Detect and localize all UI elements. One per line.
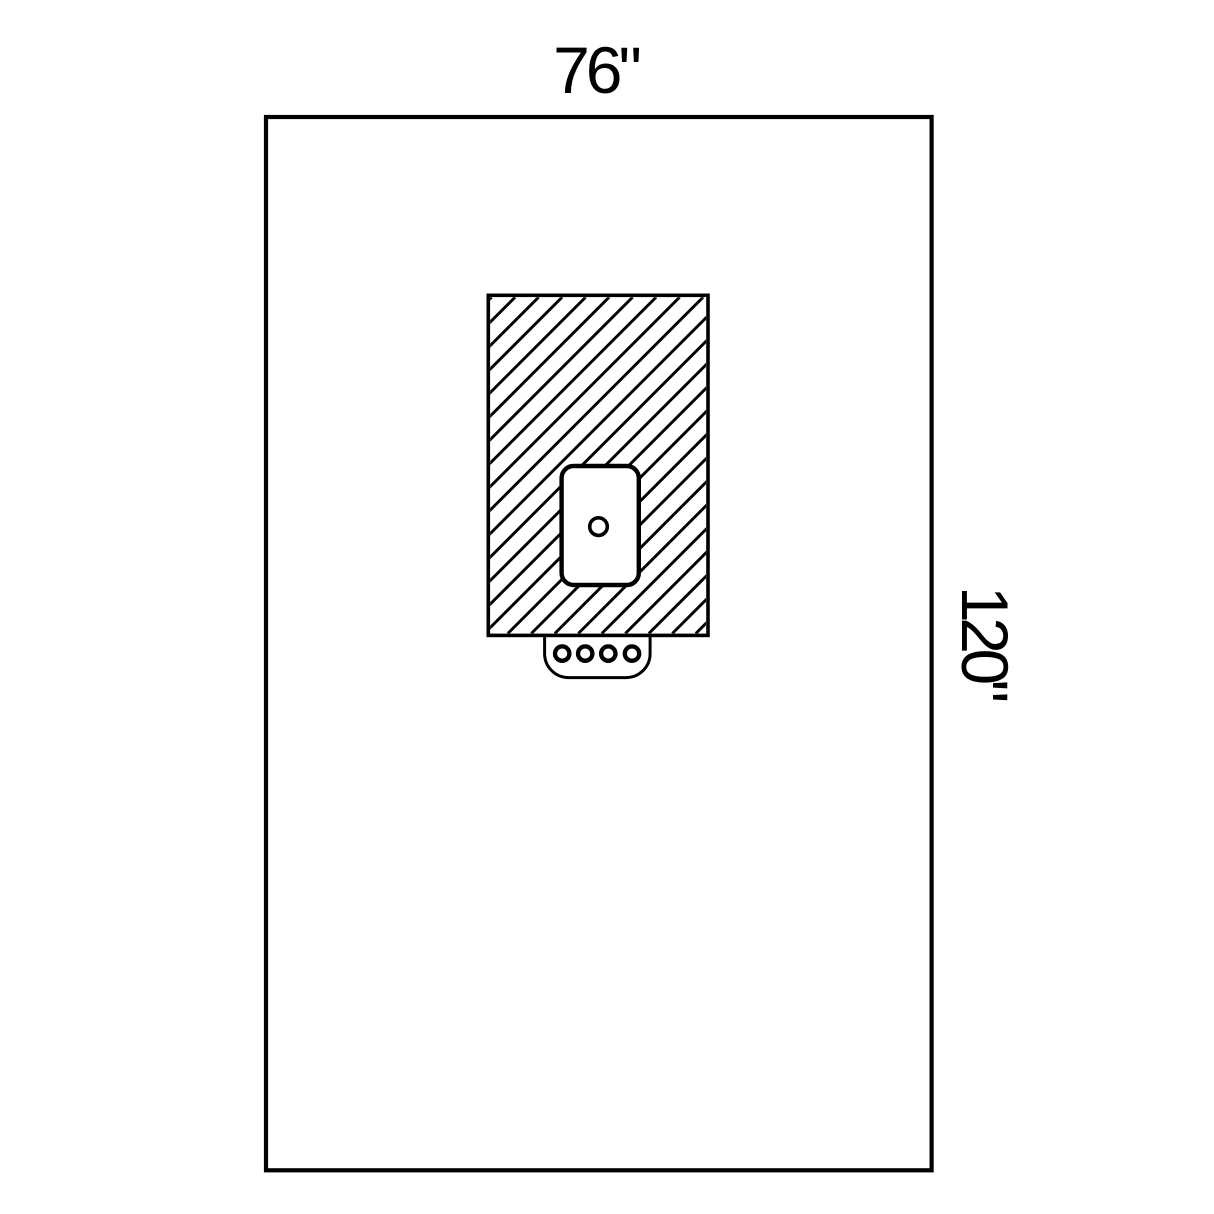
svg-text:120": 120" — [948, 586, 1022, 701]
svg-text:76": 76" — [553, 33, 639, 107]
